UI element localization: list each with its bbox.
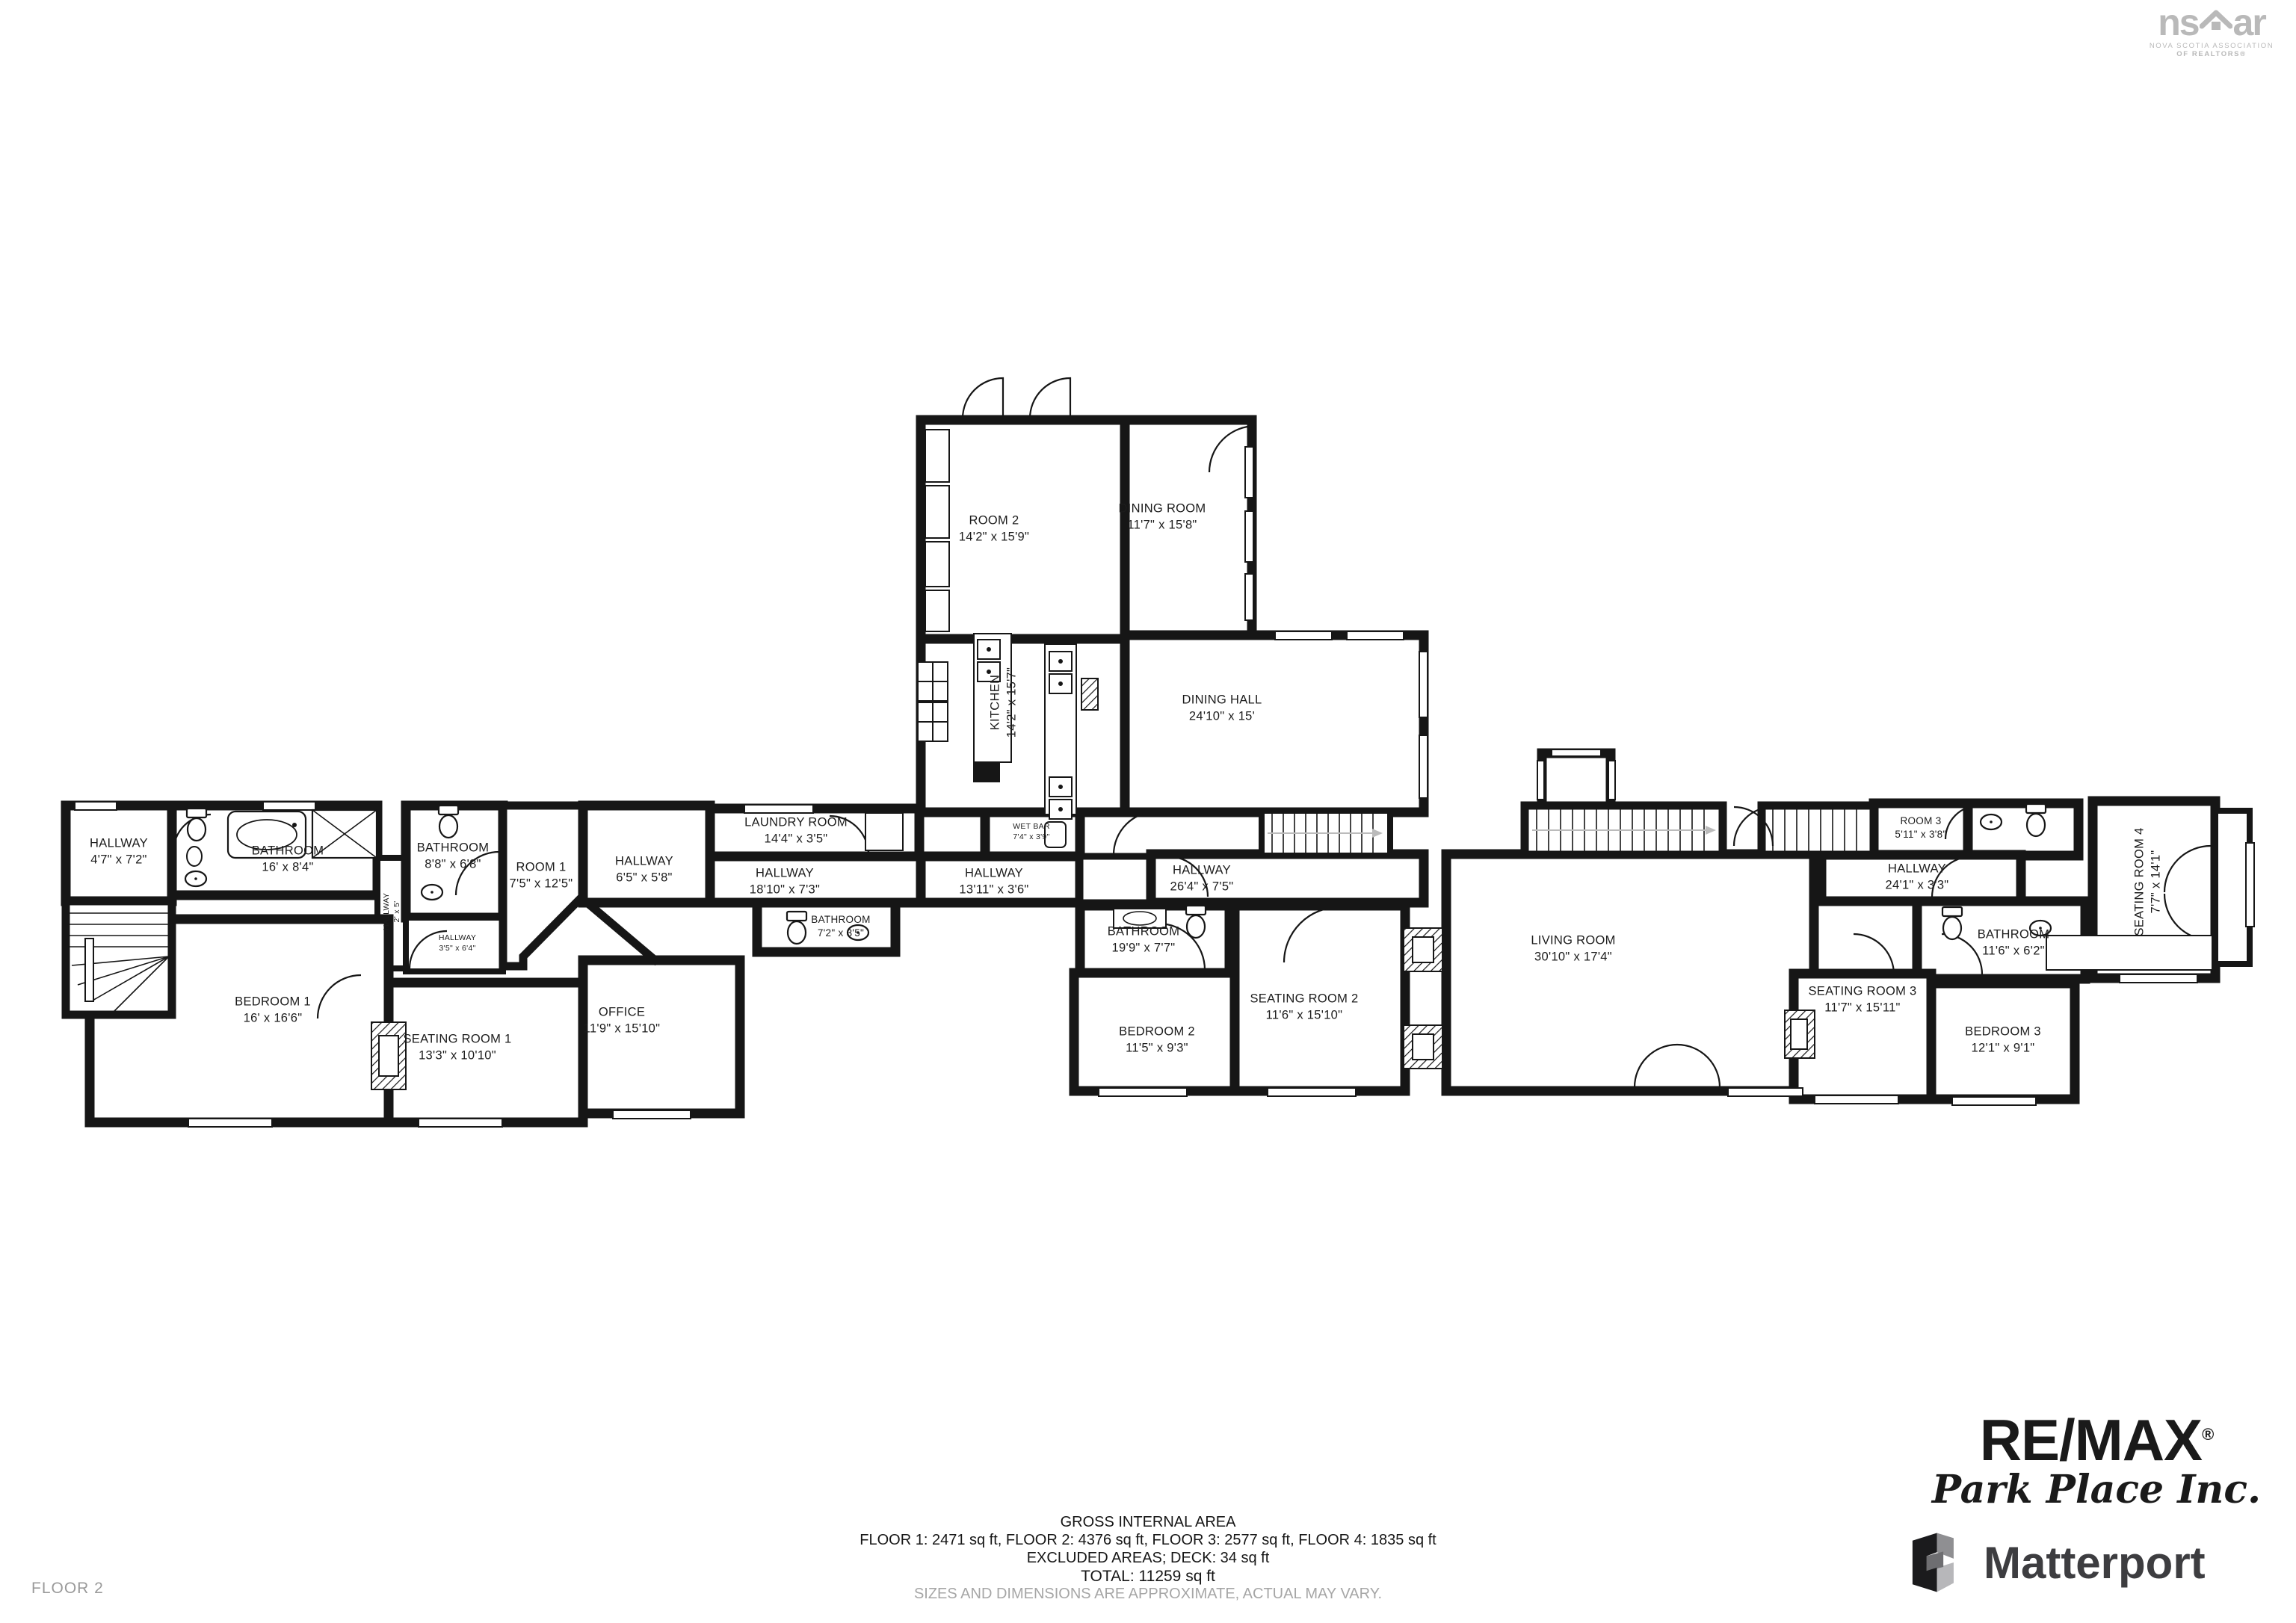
floorplan-drawing: [0, 0, 2296, 1623]
label-bathroom-116: BATHROOM11'6" x 6'2": [1978, 927, 2050, 960]
gross-internal-area-title: GROSS INTERNAL AREA: [0, 1514, 2296, 1531]
floor-number-label: FLOOR 2: [31, 1580, 104, 1598]
registered-mark-icon: ®: [2202, 1425, 2213, 1444]
floorplan-page: { "floor_label": "FLOOR 2", "footer": { …: [0, 0, 2296, 1623]
label-hallway-4-7: HALLWAY4'7" x 7'2": [90, 835, 148, 869]
label-wet-bar: WET BAR7'4" x 3'9": [1013, 821, 1050, 842]
label-hallway-1810: HALLWAY18'10" x 7'3": [750, 865, 820, 899]
label-hallway-2x5: HALLWAY2' x 5': [381, 893, 402, 930]
label-kitchen: KITCHEN14'2" x 15'7": [987, 667, 1021, 738]
label-bathroom-88: BATHROOM8'8" x 6'8": [417, 840, 490, 874]
matterport-logo: Matterport: [1907, 1530, 2206, 1595]
label-room-1: ROOM 17'5" x 12'5": [510, 859, 573, 893]
remax-wordmark: RE/MAX®: [1913, 1411, 2280, 1469]
matterport-cube-icon: [1907, 1530, 1972, 1595]
remax-office-name: Park Place Inc.: [1913, 1471, 2280, 1509]
label-bedroom-2: BEDROOM 211'5" x 9'3": [1119, 1024, 1195, 1057]
label-bathroom-199: BATHROOM19'9" x 7'7": [1108, 924, 1180, 957]
label-seating-room-3: SEATING ROOM 311'7" x 15'11": [1808, 983, 1916, 1017]
label-seating-room-4: SEATING ROOM 47'7" x 14'1": [2132, 827, 2165, 936]
label-bedroom-1: BEDROOM 116' x 16'6": [235, 994, 311, 1027]
label-hallway-264: HALLWAY26'4" x 7'5": [1170, 862, 1234, 896]
label-hallway-241: HALLWAY24'1" x 3'3": [1886, 861, 1949, 894]
label-laundry-room: LAUNDRY ROOM14'4" x 3'5": [744, 814, 848, 848]
label-seating-room-1: SEATING ROOM 113'3" x 10'10": [403, 1031, 511, 1065]
label-seating-room-2: SEATING ROOM 211'6" x 15'10": [1250, 991, 1358, 1024]
nsar-tagline-1: NOVA SCOTIA ASSOCIATION: [2141, 42, 2283, 50]
label-hallway-65: HALLWAY6'5" x 5'8": [615, 853, 673, 887]
nsar-wordmark: ns ar: [2141, 6, 2283, 40]
label-bathroom-72: BATHROOM7'2" x 3'5": [811, 913, 870, 940]
nsar-tagline-2: OF REALTORS®: [2141, 50, 2283, 58]
label-hallway-35x64: HALLWAY3'5" x 6'4": [439, 933, 476, 953]
label-living-room: LIVING ROOM30'10" x 17'4": [1531, 933, 1615, 966]
nsar-logo: ns ar NOVA SCOTIA ASSOCIATION OF REALTOR…: [2141, 6, 2283, 58]
label-office: OFFICE11'9" x 15'10": [584, 1004, 661, 1038]
matterport-wordmark: Matterport: [1984, 1537, 2206, 1589]
nsar-house-icon: [2200, 7, 2232, 40]
remax-logo: RE/MAX® Park Place Inc.: [1913, 1411, 2280, 1509]
label-hallway-1311: HALLWAY13'11" x 3'6": [959, 865, 1028, 899]
label-dining-hall: DINING HALL24'10" x 15': [1182, 692, 1262, 726]
label-room-2: ROOM 214'2" x 15'9": [959, 513, 1029, 546]
label-bedroom-3: BEDROOM 312'1" x 9'1": [1965, 1024, 2041, 1057]
label-dining-room: DINING ROOM11'7" x 15'8": [1119, 501, 1206, 534]
label-bathroom-16: BATHROOM16' x 8'4": [252, 843, 324, 877]
label-room-3: ROOM 35'11" x 3'8": [1895, 814, 1946, 841]
